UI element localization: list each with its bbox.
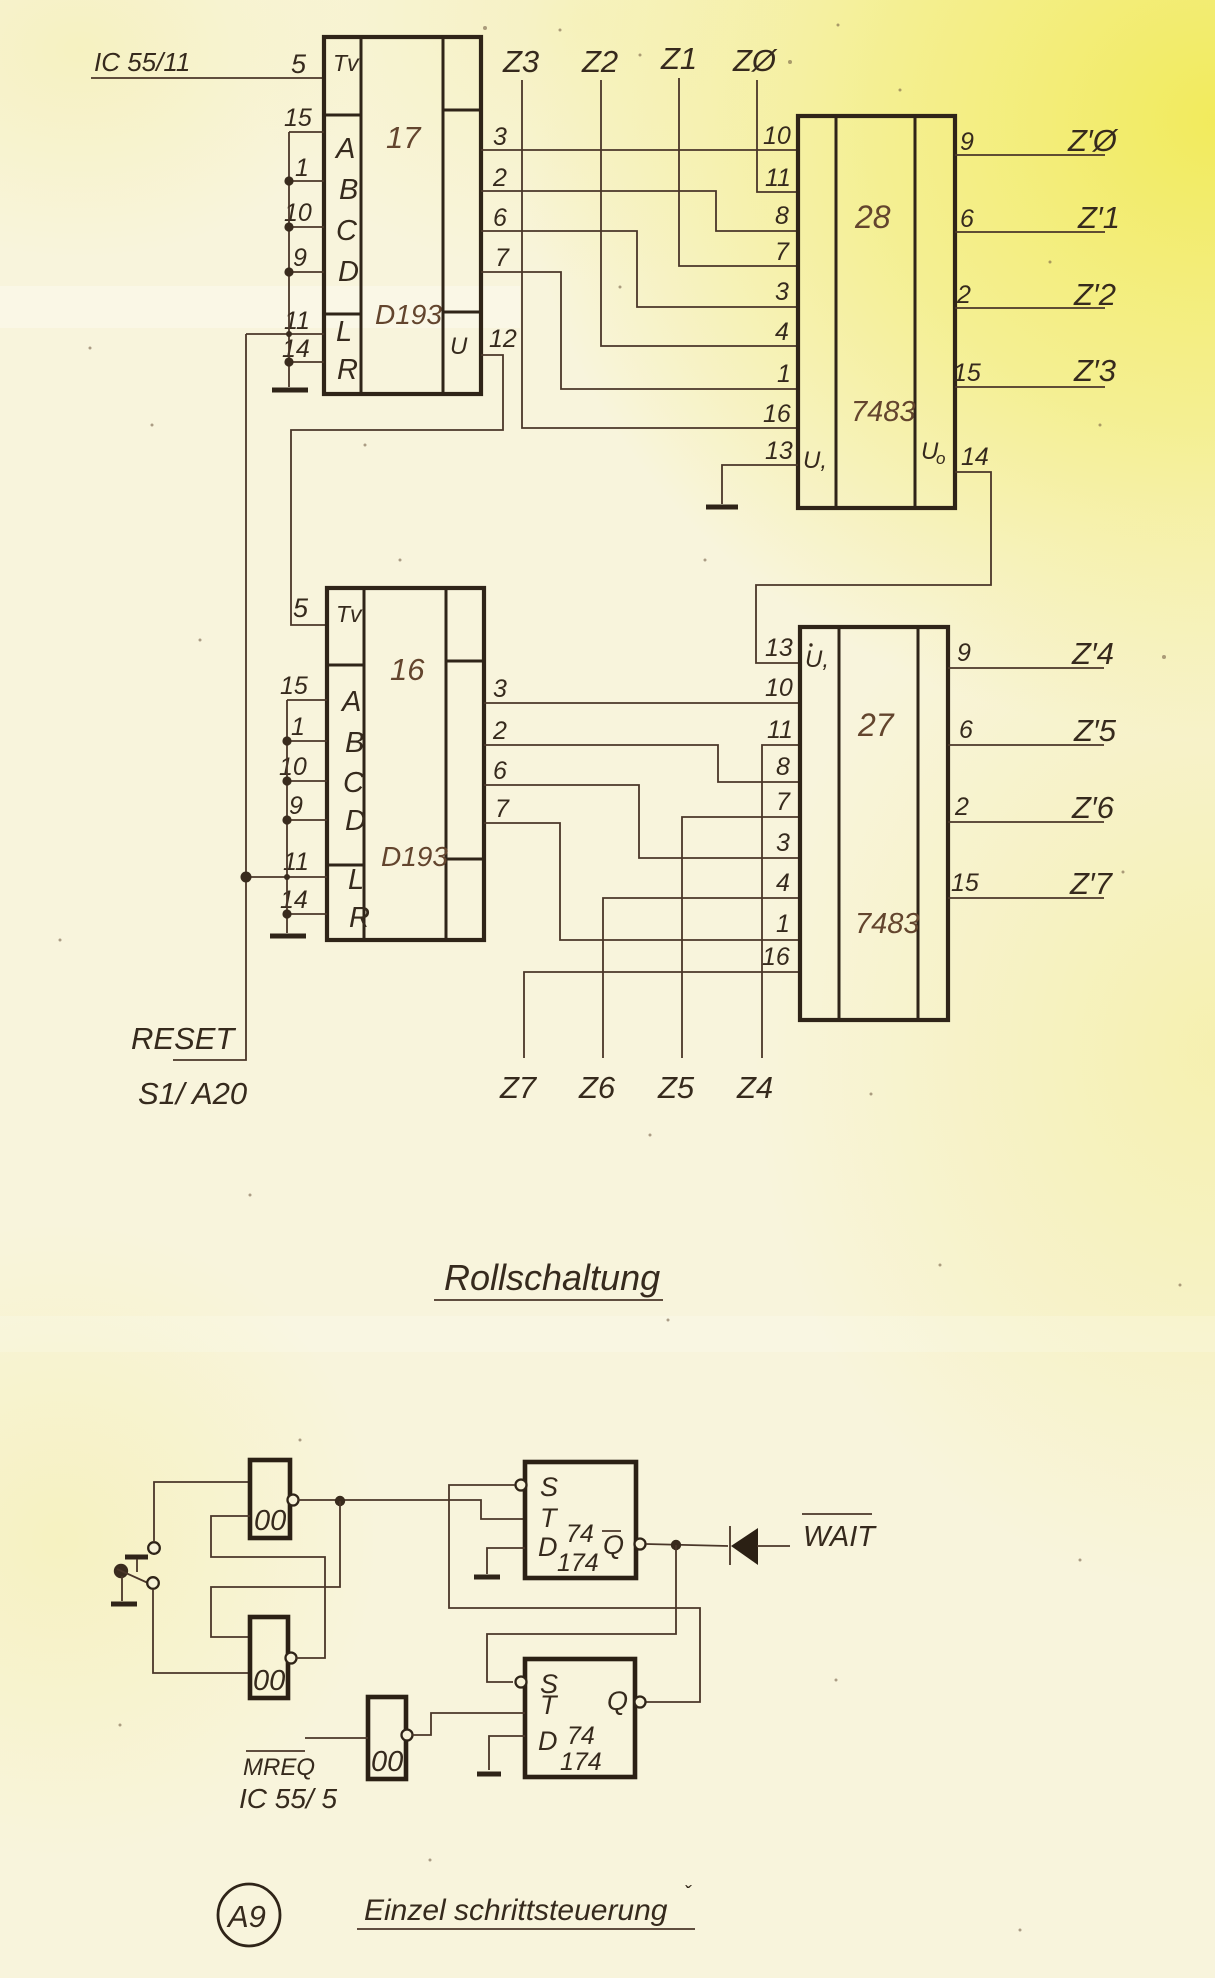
svg-text:T: T [540,1503,559,1533]
svg-text:1: 1 [776,910,790,938]
svg-text:3: 3 [493,123,507,151]
svg-text:D: D [345,805,366,837]
svg-text:7483: 7483 [851,396,916,428]
svg-text:11: 11 [765,164,791,192]
svg-text:10: 10 [763,122,791,150]
svg-text:A: A [340,686,361,718]
svg-text:2: 2 [492,164,507,192]
svg-text:Rollschaltung: Rollschaltung [444,1257,660,1298]
svg-text:8: 8 [776,753,790,781]
svg-text:14: 14 [280,886,308,914]
svg-text:Q: Q [603,1530,624,1560]
svg-text:L: L [336,316,352,348]
svg-text:D: D [538,1726,558,1756]
svg-text:Z′1: Z′1 [1077,200,1120,235]
svg-text:T: T [540,1690,559,1720]
svg-text:RESET: RESET [131,1021,236,1056]
svg-text:7: 7 [775,238,790,266]
svg-text:Z′2: Z′2 [1073,277,1116,312]
svg-text:74: 74 [566,1520,594,1548]
svg-text:Z2: Z2 [581,44,618,79]
svg-text:14: 14 [961,443,989,471]
svg-text:6: 6 [960,205,974,233]
svg-text:1: 1 [291,713,305,741]
svg-text:00: 00 [253,1665,285,1697]
svg-text:U: U [450,333,468,360]
svg-text:Tv: Tv [336,601,363,627]
svg-text:10: 10 [279,753,307,781]
svg-text:ZØ: ZØ [732,43,778,78]
svg-text:S: S [540,1472,558,1502]
svg-text:Z′3: Z′3 [1073,353,1116,388]
svg-text:27: 27 [857,707,895,743]
svg-text:7483: 7483 [855,908,920,940]
svg-text:9: 9 [289,792,303,820]
svg-text:U,: U, [803,447,827,474]
svg-text:4: 4 [775,318,789,346]
svg-text:Q: Q [607,1686,628,1716]
svg-text:U,: U, [805,646,829,673]
svg-text:D193: D193 [375,299,442,330]
svg-text:Z′4: Z′4 [1071,636,1114,671]
svg-text:9: 9 [293,244,307,272]
svg-text:Tv: Tv [333,50,360,76]
svg-text:15: 15 [280,672,308,700]
svg-text:B: B [339,174,358,206]
svg-text:Z3: Z3 [502,44,539,79]
svg-text:D193: D193 [381,841,448,872]
svg-text:S1/ A20: S1/ A20 [138,1076,247,1111]
svg-text:15: 15 [284,104,312,132]
svg-text:6: 6 [493,204,507,232]
svg-text:Z5: Z5 [657,1070,695,1105]
svg-text:00: 00 [371,1746,403,1778]
svg-text:17: 17 [386,120,422,155]
svg-text:00: 00 [254,1505,286,1537]
svg-text:A: A [334,133,355,165]
svg-text:5: 5 [291,49,307,79]
svg-text:6: 6 [493,757,507,785]
svg-text:B: B [345,727,364,759]
svg-text:16: 16 [763,400,791,428]
svg-text:11: 11 [767,716,793,744]
svg-text:15: 15 [953,359,981,387]
svg-text:L: L [348,864,364,896]
svg-text:7: 7 [495,244,510,272]
svg-text:MREQ: MREQ [243,1754,315,1781]
svg-text:Z′6: Z′6 [1071,790,1115,825]
svg-text:Z′7: Z′7 [1069,866,1114,901]
svg-text:IC 55/11: IC 55/11 [94,47,190,77]
svg-text:A9: A9 [226,1899,266,1934]
svg-text:2: 2 [954,793,969,821]
svg-text:15: 15 [951,869,979,897]
svg-text:o: o [936,449,945,468]
svg-text:Einzel schrittsteuerung: Einzel schrittsteuerung [364,1894,668,1927]
svg-text:28: 28 [854,199,891,235]
svg-text:R: R [337,354,358,386]
svg-text:10: 10 [765,674,793,702]
svg-text:13: 13 [765,634,793,662]
svg-text:8: 8 [775,202,789,230]
svg-text:Z′Ø: Z′Ø [1067,123,1119,158]
svg-text:3: 3 [776,829,790,857]
svg-text:7: 7 [776,788,791,816]
svg-text:D: D [538,1532,558,1562]
svg-text:2: 2 [492,717,507,745]
svg-text:Z4: Z4 [736,1070,773,1105]
svg-text:74: 74 [567,1722,595,1750]
svg-text:1: 1 [295,154,309,182]
svg-text:16: 16 [390,652,425,687]
svg-text:11: 11 [284,307,310,335]
svg-text:9: 9 [957,639,971,667]
svg-text:WAIT: WAIT [803,1521,877,1553]
svg-text:174: 174 [557,1549,599,1577]
svg-text:6: 6 [959,716,973,744]
svg-text:3: 3 [775,278,789,306]
svg-text:IC 55/ 5: IC 55/ 5 [239,1783,337,1814]
svg-text:12: 12 [489,325,517,353]
svg-text:D: D [338,256,359,288]
svg-text:Z6: Z6 [578,1070,616,1105]
svg-text:7: 7 [495,795,510,823]
svg-text:5: 5 [293,593,309,623]
svg-text:9: 9 [960,128,974,156]
svg-text:174: 174 [560,1748,602,1776]
svg-text:4: 4 [776,869,790,897]
svg-text:13: 13 [765,437,793,465]
svg-text:1: 1 [777,360,791,388]
svg-text:3: 3 [493,675,507,703]
svg-text:Z7: Z7 [499,1070,538,1105]
svg-text:C: C [336,215,358,247]
svg-text:Z1: Z1 [660,41,697,76]
svg-text:16: 16 [762,943,790,971]
svg-text:R: R [349,902,370,934]
svg-text:C: C [343,767,365,799]
svg-text:Z′5: Z′5 [1073,713,1117,748]
svg-text:2: 2 [956,281,971,309]
